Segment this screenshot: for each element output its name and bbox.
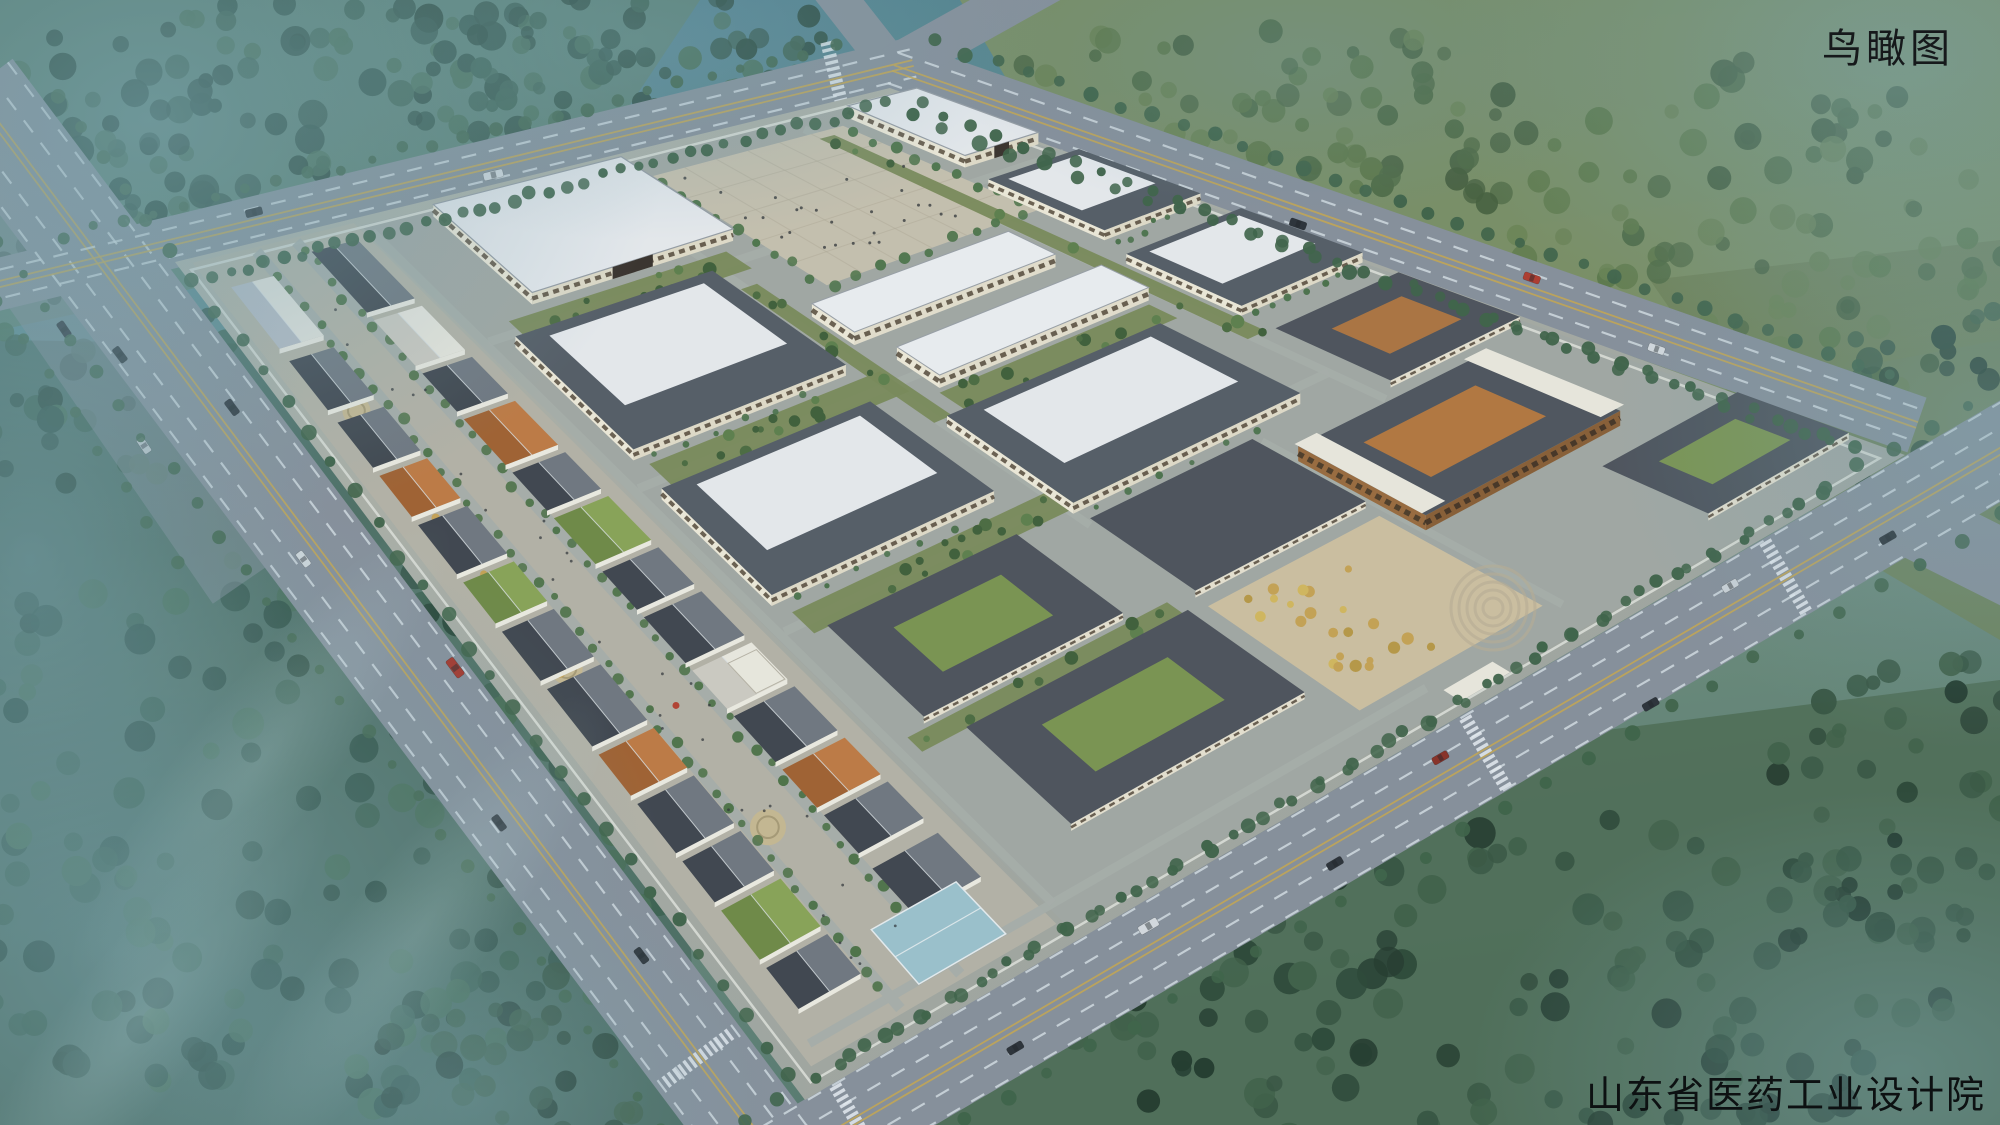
mist-layer — [0, 0, 2000, 1125]
view-title: 鸟瞰图 — [1822, 16, 1954, 74]
design-institute-credit: 山东省医药工业设计院 — [1586, 1064, 1986, 1119]
aerial-rendering: 鸟瞰图 山东省医药工业设计院 — [0, 0, 2000, 1125]
rendering-canvas — [0, 0, 2000, 1125]
